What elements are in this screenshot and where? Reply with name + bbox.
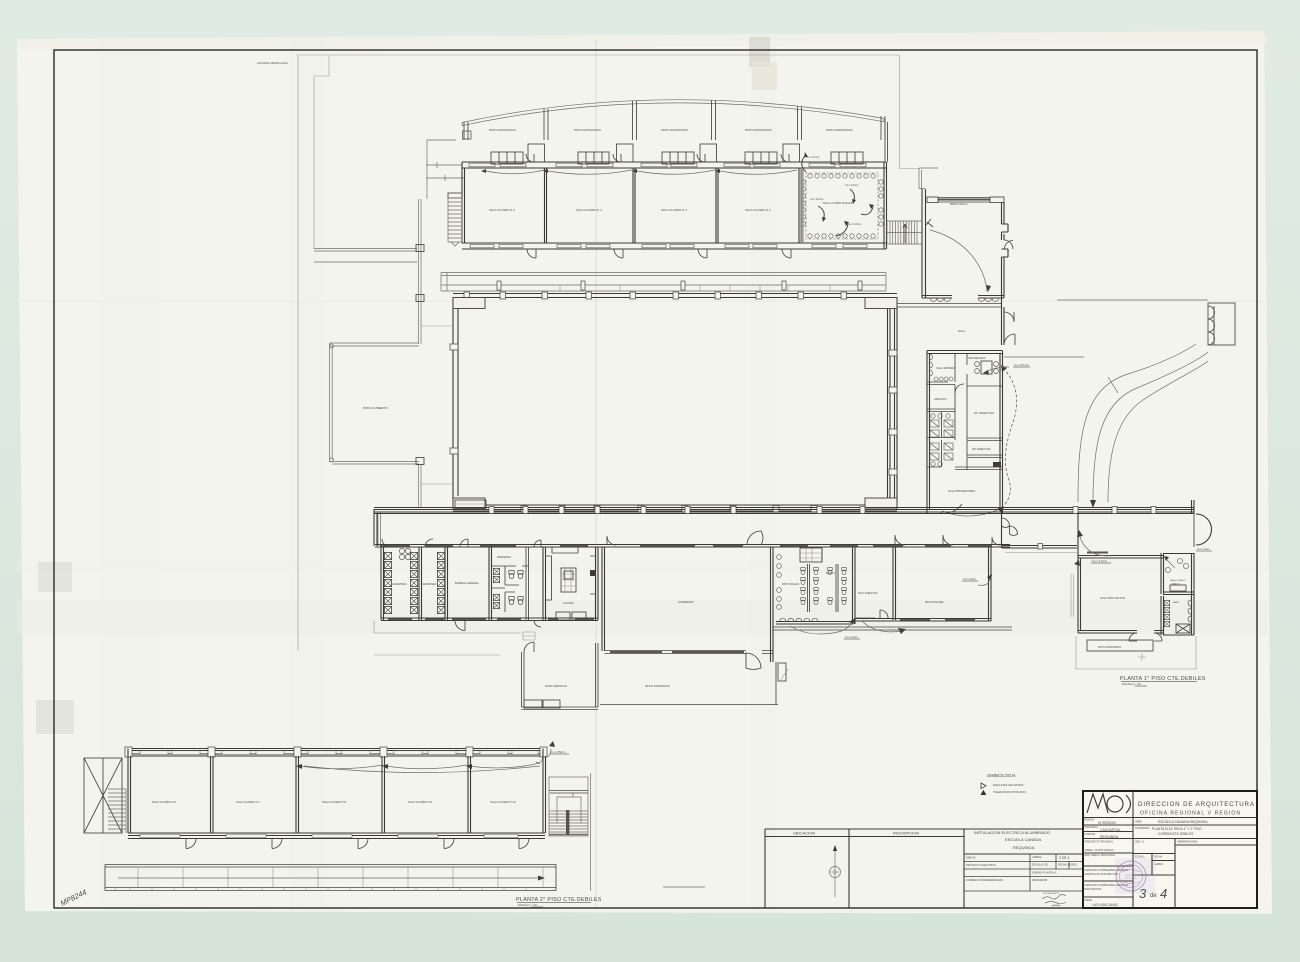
svg-text:CAMARINES: CAMARINES: [391, 582, 407, 586]
svg-text:REGION: REGION: [1085, 819, 1095, 822]
svg-text:SALA CLASES N 9: SALA CLASES N 9: [408, 800, 432, 804]
svg-text:INSTALACION ELECTRICA ALUMBRAD: INSTALACION ELECTRICA ALUMBRADO: [974, 830, 1050, 835]
svg-text:ELECTRICISTA: ELECTRICISTA: [1085, 888, 1102, 891]
svg-text:PATIO SERVICIO: PATIO SERVICIO: [545, 684, 568, 688]
svg-text:ENCHUFE DE DATOS: ENCHUFE DE DATOS: [993, 783, 1023, 787]
svg-text:4: 4: [1160, 886, 1167, 901]
svg-text:PATIO EXPANSION: PATIO EXPANSION: [574, 128, 601, 132]
svg-text:FIRMA: FIRMA: [1085, 899, 1093, 902]
svg-text:ESCALA 1 : 50: ESCALA 1 : 50: [518, 903, 537, 907]
svg-text:LAMINA: LAMINA: [1154, 863, 1163, 866]
svg-text:COCINA: COCINA: [563, 601, 574, 605]
svg-text:LAMINA: LAMINA: [1032, 855, 1042, 859]
svg-text:SALA CLASES N 10: SALA CLASES N 10: [490, 800, 516, 804]
svg-text:ESCUELA CANADA: ESCUELA CANADA: [1005, 837, 1042, 842]
svg-text:ARQUITECTO REGIONAL: ARQUITECTO REGIONAL: [1085, 841, 1114, 844]
svg-text:CORRIENTES DEBILES: CORRIENTES DEBILES: [1158, 832, 1193, 836]
svg-text:REVISADOR: REVISADOR: [1032, 878, 1047, 882]
svg-text:SECRETARIA: SECRETARIA: [968, 356, 986, 360]
svg-text:SALA ESPERA: SALA ESPERA: [936, 366, 955, 370]
svg-text:UBIC. N: UBIC. N: [1135, 841, 1144, 844]
svg-text:UBICACION: UBICACION: [793, 831, 815, 836]
svg-text:SALA CLASES N 2: SALA CLASES N 2: [745, 208, 771, 212]
svg-text:ARQ. JEFE D. PROVINCIAL: ARQ. JEFE D. PROVINCIAL: [1085, 854, 1116, 857]
svg-text:CORRECCION REFERENCIAS: CORRECCION REFERENCIAS: [966, 878, 1003, 882]
svg-text:BANO: BANO: [1173, 601, 1179, 604]
svg-text:SALA ATENCION: SALA ATENCION: [858, 592, 878, 595]
svg-text:MULTITALLER: MULTITALLER: [925, 600, 944, 604]
svg-text:Cu x 4mm: Cu x 4mm: [845, 635, 858, 639]
svg-text:ESCALA 1 : 50: ESCALA 1 : 50: [1122, 682, 1141, 686]
svg-text:INSCRIPCION: INSCRIPCION: [893, 831, 919, 836]
svg-text:PATIO EXPANSION: PATIO EXPANSION: [826, 128, 853, 132]
svg-text:PLANTA ELECTRICA 1° Y 2° PISO: PLANTA ELECTRICA 1° Y 2° PISO: [1152, 827, 1202, 831]
svg-text:ESCALA 1:50: ESCALA 1:50: [1032, 863, 1048, 867]
svg-text:TELEFONO/CITOFONO: TELEFONO/CITOFONO: [993, 790, 1026, 794]
svg-text:REQUINOA: REQUINOA: [1100, 835, 1119, 839]
svg-text:PROVINCIA: PROVINCIA: [1085, 826, 1099, 829]
svg-text:DISENO PLANTILLA: DISENO PLANTILLA: [1032, 871, 1057, 875]
svg-text:DIRECCION DE ARQUITECTURA: DIRECCION DE ARQUITECTURA: [1138, 801, 1255, 808]
svg-text:ESCUELA CANADA REQUINOA: ESCUELA CANADA REQUINOA: [1158, 820, 1208, 824]
svg-text:PROYECTO ELECTRICO: PROYECTO ELECTRICO: [966, 863, 996, 867]
svg-text:SALA CLASES N 6: SALA CLASES N 6: [152, 800, 176, 804]
svg-text:SALA COMPUTACION: SALA COMPUTACION: [823, 201, 854, 205]
svg-text:VI REGION: VI REGION: [1098, 821, 1116, 825]
svg-text:PATIO EXPANSION: PATIO EXPANSION: [489, 128, 516, 132]
svg-text:Cu x 35mm: Cu x 35mm: [551, 750, 566, 754]
svg-text:FECHA 10/2001: FECHA 10/2001: [1058, 863, 1077, 867]
svg-text:Cu x 10mm: Cu x 10mm: [810, 197, 823, 201]
svg-text:SALA CLASES N 7: SALA CLASES N 7: [236, 800, 260, 804]
svg-text:DESPENSA: DESPENSA: [497, 555, 511, 559]
svg-text:V.B. JEFE DEPTO: V.B. JEFE DEPTO: [1043, 893, 1060, 895]
svg-text:SALA CLASES N 4: SALA CLASES N 4: [576, 208, 602, 212]
svg-text:ARCHIVO: ARCHIVO: [934, 397, 948, 401]
svg-text:Cu x 35 mm: Cu x 35 mm: [1014, 363, 1030, 367]
svg-text:PATIO EXPANSION: PATIO EXPANSION: [1098, 645, 1121, 649]
svg-text:PATIO EXPANSION: PATIO EXPANSION: [645, 684, 670, 688]
svg-text:CAMARINES: CAMARINES: [421, 582, 437, 586]
svg-text:Cu x 4mm: Cu x 4mm: [963, 577, 976, 581]
svg-text:SALA PROFESORES: SALA PROFESORES: [948, 489, 975, 493]
svg-text:OFICINA REGIONAL V REGION: OFICINA REGIONAL V REGION: [1140, 811, 1240, 817]
svg-text:FECHA: FECHA: [1154, 856, 1163, 859]
svg-text:SALA PROYECTOS: SALA PROYECTOS: [1100, 596, 1125, 600]
svg-text:CACHAPOAL: CACHAPOAL: [1100, 828, 1121, 832]
svg-text:PATIO EXPANSION: PATIO EXPANSION: [745, 128, 772, 132]
svg-text:PATIO EXPANSION: PATIO EXPANSION: [661, 128, 688, 132]
svg-text:CONTENIDO: CONTENIDO: [1135, 827, 1149, 830]
svg-text:BIBLIOTECA: BIBLIOTECA: [950, 202, 968, 206]
svg-text:Cu x 4 0mm: Cu x 4 0mm: [1092, 559, 1108, 563]
svg-text:SALA COMPUT.: SALA COMPUT.: [1170, 579, 1186, 582]
svg-text:COMUNA: COMUNA: [1085, 833, 1096, 836]
svg-text:HALL: HALL: [958, 329, 966, 333]
svg-text:SALA CLASES N 8: SALA CLASES N 8: [322, 800, 346, 804]
svg-text:PATIO CUBIERTO: PATIO CUBIERTO: [363, 406, 388, 410]
svg-text:ACCESO VEHICULAR: ACCESO VEHICULAR: [257, 61, 289, 65]
svg-text:SALA CLASES N 3: SALA CLASES N 3: [661, 208, 687, 212]
svg-text:SIMBOLOGIA: SIMBOLOGIA: [987, 773, 1017, 778]
svg-text:PATIO INGLES: PATIO INGLES: [782, 583, 799, 586]
svg-text:WC DIRECTOR: WC DIRECTOR: [972, 447, 991, 451]
svg-text:COMEDOR: COMEDOR: [678, 600, 695, 604]
svg-text:ARQUITECTO RURODECTOR: ARQUITECTO RURODECTOR: [1085, 873, 1119, 876]
svg-text:SALA CLASES N 5: SALA CLASES N 5: [489, 208, 515, 212]
svg-text:BODEGA GENERAL: BODEGA GENERAL: [455, 581, 480, 585]
svg-text:REQUINOA: REQUINOA: [1013, 845, 1035, 850]
svg-text:JAIME L. ROJOS VARGAS: JAIME L. ROJOS VARGAS: [1085, 849, 1114, 852]
svg-text:Cu x 10mm: Cu x 10mm: [848, 222, 861, 226]
svg-text:LAS INDICADAS: LAS INDICADAS: [1092, 903, 1119, 907]
svg-text:OF. DIRECTOR: OF. DIRECTOR: [974, 411, 994, 415]
svg-text:DIBUJO: DIBUJO: [966, 856, 976, 860]
svg-text:Cu x 4mm: Cu x 4mm: [1197, 547, 1210, 551]
svg-text:OBSERVACIONES: OBSERVACIONES: [1177, 841, 1198, 844]
svg-text:3 DE 4: 3 DE 4: [1059, 856, 1069, 860]
svg-text:Cu x 10mm: Cu x 10mm: [845, 183, 858, 187]
svg-text:OBRA: OBRA: [1135, 821, 1142, 824]
